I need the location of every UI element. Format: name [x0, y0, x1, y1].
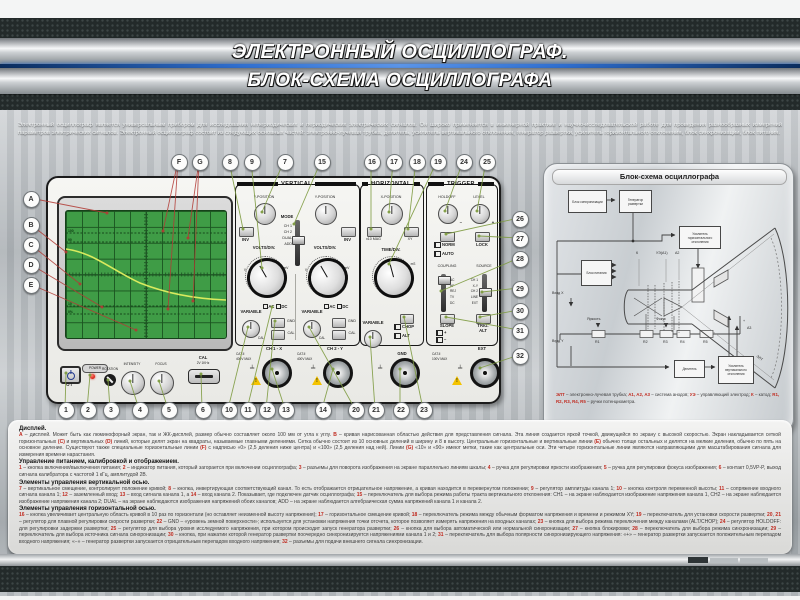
ch1-volts-unit-v: V	[241, 268, 249, 272]
time-unit-ms: mS	[407, 262, 419, 266]
ch2-warning-icon: !	[312, 376, 322, 385]
focus-knob	[150, 371, 174, 395]
ch2-input-label: CH 2 - Y	[320, 346, 350, 351]
trigger-section-header: TRIGGER	[428, 181, 494, 187]
holdoff-label: HOLDOFF	[429, 195, 465, 199]
r2-label: R2	[643, 340, 648, 344]
screen-bezel: 100 90 10 0%	[57, 196, 233, 351]
switch-icon	[434, 251, 441, 257]
notes-section-2-body: 1 – кнопка включения/выключения питания;…	[19, 465, 781, 478]
callout-letter-b: B	[23, 217, 40, 234]
ch2-volts-unit-v: V	[302, 268, 310, 272]
chain-plus-label: +	[743, 319, 745, 323]
switch-icon	[394, 333, 401, 339]
callout-17: 17	[386, 154, 403, 171]
x10-mag-label: x10 MAG	[360, 237, 387, 241]
switch-icon	[434, 242, 441, 248]
callout-20: 20	[348, 402, 365, 419]
callout-13: 13	[278, 402, 295, 419]
callout-31: 31	[512, 323, 529, 340]
block-diagram-panel: Блок-схема осциллографа	[543, 163, 794, 433]
callout-28: 28	[512, 251, 529, 268]
callout-14: 14	[315, 402, 332, 419]
source-slider	[482, 274, 487, 312]
trig-alt-label: ALT	[472, 328, 494, 333]
callout-letter-d: D	[23, 257, 40, 274]
r3-label: R3	[663, 340, 668, 344]
ch2-variable-label: VARIABLE	[297, 309, 327, 314]
block-power-supply: Блок питания	[581, 260, 612, 286]
ch1-variable-label: VARIABLE	[236, 309, 266, 314]
callout-10: 10	[221, 402, 238, 419]
a3-label: А3	[747, 326, 751, 330]
scale-100-label: 100	[68, 229, 74, 233]
level-knob	[470, 204, 490, 224]
switch-icon	[436, 330, 443, 336]
ch2-cal-btn-label: CAL	[345, 331, 359, 335]
level-plus: +	[488, 220, 498, 225]
ch1-warning-icon: !	[251, 376, 261, 385]
callout-2: 2	[80, 402, 97, 419]
trigger-title: TRIGGER	[444, 181, 478, 187]
ue-a1-label: УЭ(А1)	[656, 251, 668, 255]
callout-22: 22	[393, 402, 410, 419]
power-onoff-marks: O I	[54, 382, 84, 387]
callout-letter-f: F	[171, 154, 188, 171]
ch2-gnd-label: GND	[345, 319, 359, 323]
ch2-variable-cal-label: CAL	[315, 336, 329, 340]
ext-bnc	[470, 358, 500, 388]
ext-warning-icon: !	[452, 376, 462, 385]
callout-7: 7	[277, 154, 294, 171]
block-sweep-generator: Генератор развертки	[619, 190, 652, 213]
holdoff-knob	[438, 204, 458, 224]
ch1-cal-button	[271, 330, 285, 340]
norm-auto-button	[440, 232, 455, 242]
rotation-label: ROTATION	[90, 367, 130, 371]
h-variable-knob	[364, 330, 382, 348]
ch2-y-position-label: Y-POSITION	[301, 195, 349, 199]
ch2-volts-div-label: VOLTS/DIV.	[303, 245, 347, 250]
lock-button	[475, 232, 490, 242]
notes-section-1-body: А – дисплей. Может быть как люминофорный…	[19, 432, 781, 458]
block-vertical-amplifier: Усилитель вертикального отклонения	[718, 356, 754, 384]
ch1-inv-button	[239, 227, 254, 237]
x-position-knob	[381, 203, 403, 225]
ch1-volts-unit-mv: mV	[281, 266, 291, 270]
notes-panel: Дисплей. А – дисплей. Может быть как люм…	[8, 420, 792, 554]
cal-sub-label: 2V 1KHz	[188, 361, 218, 365]
x10-mag-button	[367, 227, 382, 237]
source-xy: X-Y	[462, 284, 478, 288]
callout-9: 9	[244, 154, 261, 171]
mode-label: MODE	[276, 214, 298, 219]
callout-29: 29	[512, 281, 529, 298]
callout-32: 32	[512, 348, 529, 365]
callout-24: 24	[456, 154, 473, 171]
ch1-y-position-label: Y-POSITION	[240, 195, 288, 199]
callout-11: 11	[240, 402, 257, 419]
poster-title-line1: ЭЛЕКТРОННЫЙ ОСЦИЛЛОГРАФ.	[0, 40, 800, 64]
scale-10-label: 10	[68, 302, 72, 306]
callout-21: 21	[368, 402, 385, 419]
callout-8: 8	[222, 154, 239, 171]
mode-option-dual: DUAL	[272, 236, 292, 240]
level-minus: −	[456, 220, 466, 225]
ch2-inv-button	[341, 227, 356, 237]
callout-18: 18	[409, 154, 426, 171]
ch2-gnd-button	[332, 318, 346, 328]
ch2-cat-label: CAT.II	[297, 352, 317, 356]
ch1-inv-label: INV	[237, 237, 254, 242]
publisher-logo	[688, 556, 770, 564]
ext-label: EXT	[471, 346, 493, 351]
callout-5: 5	[161, 402, 178, 419]
ch2-input-bnc	[323, 358, 353, 388]
input-x-label: Вход X	[552, 291, 564, 295]
vertical-title: VERTICAL	[278, 181, 315, 187]
auto-label: AUTO	[434, 251, 464, 257]
horizontal-title: HORIZONTAL	[368, 181, 414, 187]
ch1-volts-div-label: VOLTS/DIV.	[242, 245, 286, 250]
norm-label: NORM	[434, 242, 464, 248]
x-position-label: X-POSITION	[367, 195, 415, 199]
mode-slider	[295, 220, 300, 266]
r5-label: R5	[703, 340, 708, 344]
gnd-connector-label: GND	[391, 351, 413, 356]
rotation-screw-knob	[104, 374, 116, 386]
mode-option-ch2: CH 2	[272, 230, 292, 234]
alt-label: ALT	[394, 333, 420, 339]
slope-minus-label: −	[436, 337, 452, 343]
coupling-slider	[441, 274, 446, 312]
chop-alt-button	[400, 314, 414, 324]
ch2-inv-label: INV	[339, 237, 356, 242]
lock-label: LOCK	[471, 242, 493, 247]
cathode-label: К	[636, 251, 638, 255]
level-label: LEVEL	[461, 195, 497, 199]
callout-letter-c: C	[23, 237, 40, 254]
callout-12: 12	[259, 402, 276, 419]
callout-15: 15	[314, 154, 331, 171]
callout-16: 16	[364, 154, 381, 171]
ch1-input-bnc	[262, 358, 292, 388]
cal-output-connector	[188, 369, 220, 384]
notes-section-3-body: 7 – вертикальное смещение, контролирует …	[19, 486, 781, 506]
xy-label: XY	[403, 237, 417, 241]
r4-label: R4	[680, 340, 685, 344]
vertical-section-header: VERTICAL	[237, 181, 356, 187]
ch2-volts-unit-mv: mV	[342, 266, 352, 270]
h-variable-label: VARIABLE	[358, 320, 388, 325]
ch1-cat-label: CAT.II	[236, 352, 256, 356]
focus-diagram-label: Фокус	[656, 317, 666, 321]
callout-19: 19	[430, 154, 447, 171]
channel-divider	[295, 274, 296, 340]
a2-label: А2	[675, 251, 679, 255]
horizontal-section-header: HORIZONTAL	[362, 181, 420, 187]
block-divider: Делитель	[674, 360, 705, 378]
block-sync: Блок синхронизации	[568, 190, 607, 213]
notes-section-4-body: 16 – кнопка увеличивает центральную обла…	[19, 512, 781, 545]
oscilloscope-panel: 100 90 10 0% POWER O I ROTATION INTENSIT…	[46, 176, 501, 404]
input-y-label: Вход Y	[552, 339, 564, 343]
callout-1: 1	[58, 402, 75, 419]
cal-label: CAL	[188, 355, 218, 360]
switch-icon	[394, 324, 401, 330]
dc-icon	[276, 304, 281, 309]
slope-label: SLOPE	[436, 323, 458, 328]
footer-strip	[0, 554, 800, 566]
ch1-max-label: 400V MAX	[236, 357, 262, 361]
ch1-input-label: CH 1 - X	[259, 346, 289, 351]
power-icon	[67, 372, 75, 380]
callout-26: 26	[512, 211, 529, 228]
r1-label: R1	[595, 340, 600, 344]
xy-button	[404, 227, 419, 237]
ch2-max-label: 400V MAX	[297, 357, 323, 361]
gnd-ground-icon: ╧	[378, 366, 382, 372]
time-div-label: TIME/DIV.	[369, 247, 413, 252]
callout-23: 23	[416, 402, 433, 419]
callout-3: 3	[103, 402, 120, 419]
ch1-y-position-knob	[254, 203, 276, 225]
focus-label: FOCUS	[140, 362, 182, 366]
callout-letter-e: E	[23, 277, 40, 294]
ext-ground-icon: ╧	[458, 366, 462, 372]
poster: ЭЛЕКТРОННЫЙ ОСЦИЛЛОГРАФ. БЛОК-СХЕМА ОСЦИ…	[0, 0, 800, 600]
gnd-bnc	[390, 358, 420, 388]
ch2-ground-icon: ╧	[311, 366, 315, 372]
callout-25: 25	[479, 154, 496, 171]
source-ch1: CH 1	[462, 278, 478, 282]
coupling-label: COUPLING	[429, 264, 465, 268]
brightness-label: Яркость	[587, 317, 601, 321]
screen-graticule-waveform	[66, 211, 226, 338]
callout-letter-a: A	[23, 191, 40, 208]
ch1-variable-cal-label: CAL	[254, 336, 268, 340]
dc-icon	[337, 304, 342, 309]
intro-paragraph: Электронный осциллограф является универс…	[18, 121, 782, 138]
callout-4: 4	[132, 402, 149, 419]
switch-icon	[436, 337, 443, 343]
poster-title-line2: БЛОК-СХЕМА ОСЦИЛЛОГРАФА	[0, 68, 800, 94]
power-led	[90, 374, 95, 379]
chain-minus-label: −	[555, 341, 557, 345]
chop-label: CHOP	[394, 324, 420, 330]
ext-cat-label: CAT.II	[432, 352, 452, 356]
callout-letter-g: G	[192, 154, 209, 171]
ch2-y-position-knob	[315, 203, 337, 225]
source-ext: EXT	[462, 301, 478, 305]
ext-max-label: 100V MAX	[432, 357, 458, 361]
ch1-ground-icon: ╧	[250, 366, 254, 372]
mode-option-ch1: CH 1	[272, 224, 292, 228]
callout-27: 27	[512, 231, 529, 248]
source-slider-handle	[479, 288, 492, 297]
crt-screen: 100 90 10 0%	[65, 210, 227, 339]
slope-plus-label: +	[436, 330, 452, 336]
intensity-knob	[121, 371, 145, 395]
callout-30: 30	[512, 303, 529, 320]
scale-90-label: 90	[68, 238, 72, 242]
block-horizontal-amplifier: Усилитель горизонтального отклонения	[679, 226, 721, 249]
source-line: LINE	[462, 295, 478, 299]
source-label: SOURCE	[468, 264, 500, 268]
ch2-cal-button	[332, 330, 346, 340]
source-ch2: CH 2	[462, 289, 478, 293]
mode-slider-handle	[292, 236, 305, 245]
scale-0-label: 0%	[68, 310, 73, 314]
callout-6: 6	[195, 402, 212, 419]
bottom-perforated-band	[0, 566, 800, 592]
ch1-gnd-button	[271, 318, 285, 328]
